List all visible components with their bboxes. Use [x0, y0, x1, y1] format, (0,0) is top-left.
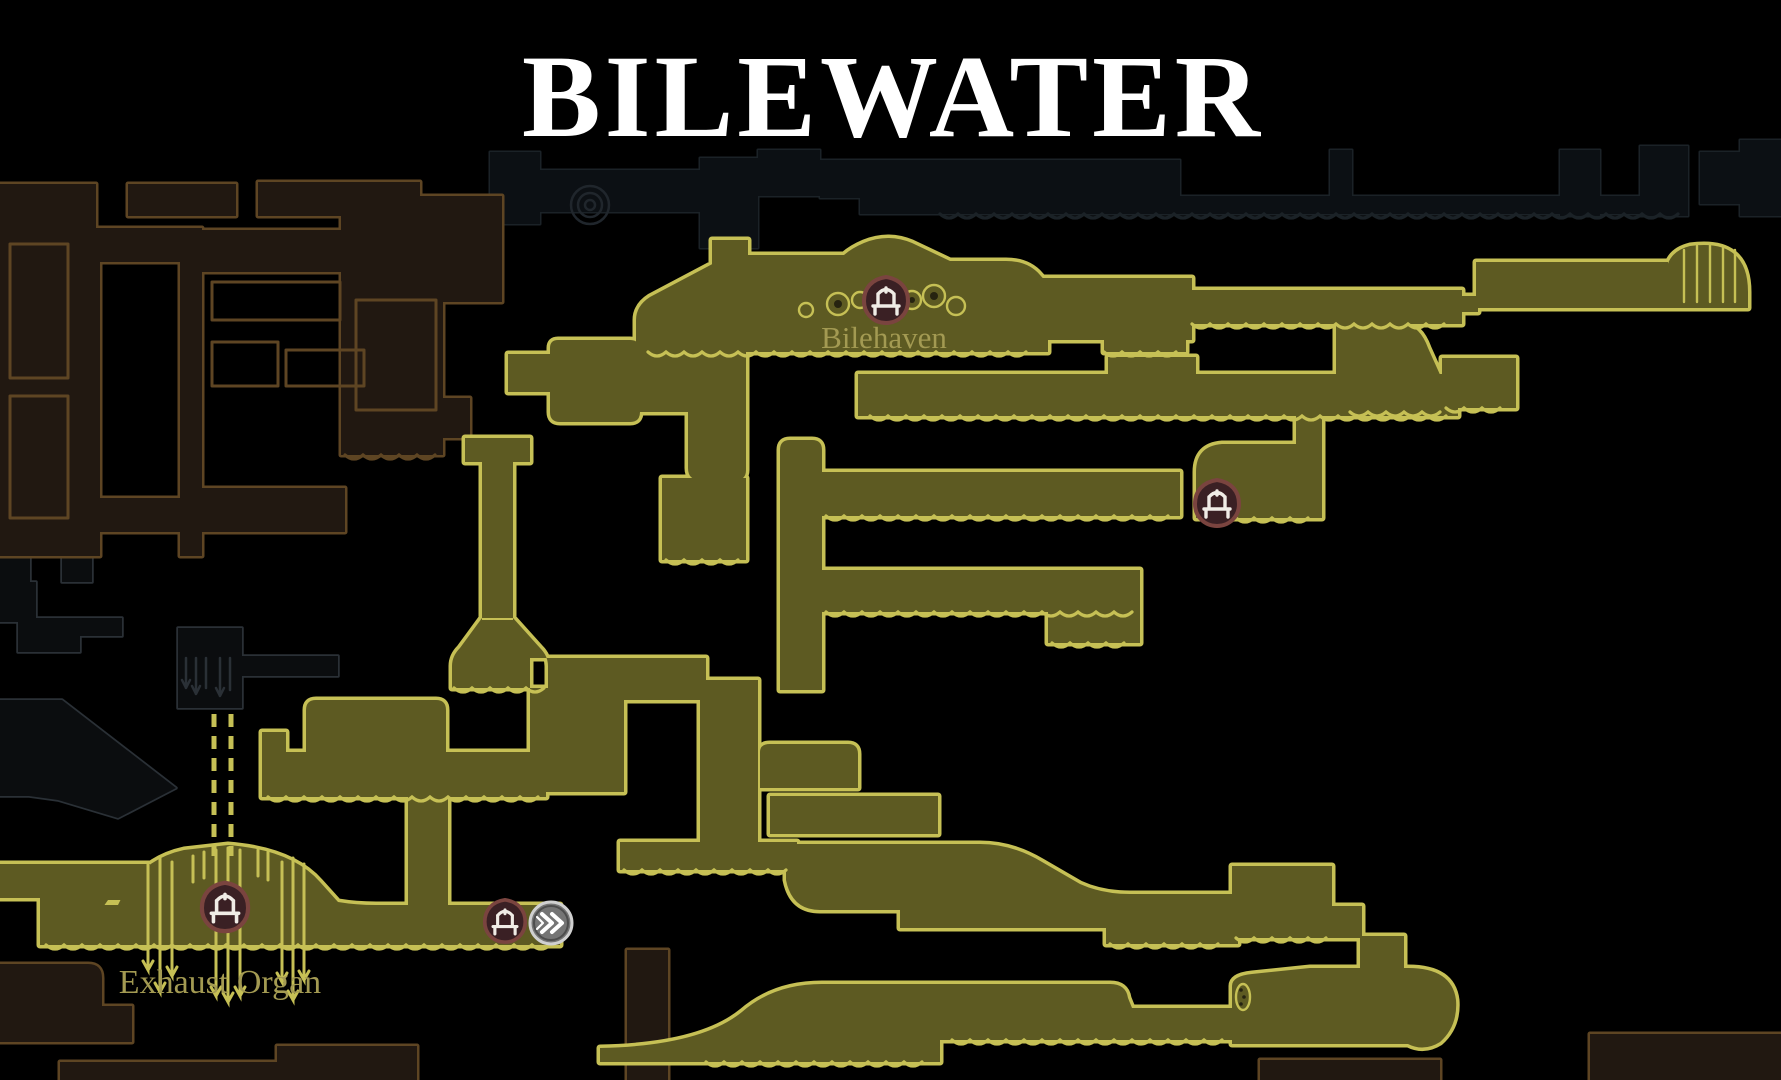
area-label-bilehaven: Bilehaven	[821, 320, 947, 355]
bench-icon	[864, 277, 908, 323]
bench-icon	[485, 900, 525, 942]
dashed-route	[214, 714, 231, 856]
map-title: BILEWATER	[522, 31, 1264, 162]
bilewater-map[interactable]: BILEWATER Bilehaven Exhaust Organ	[0, 0, 1781, 1080]
bench-icon	[1195, 480, 1239, 526]
bench-icon	[202, 883, 248, 931]
tube-station-icon	[530, 902, 572, 944]
bilewater-rooms	[0, 238, 1748, 1062]
area-label-exhaust-organ: Exhaust Organ	[119, 964, 321, 1001]
